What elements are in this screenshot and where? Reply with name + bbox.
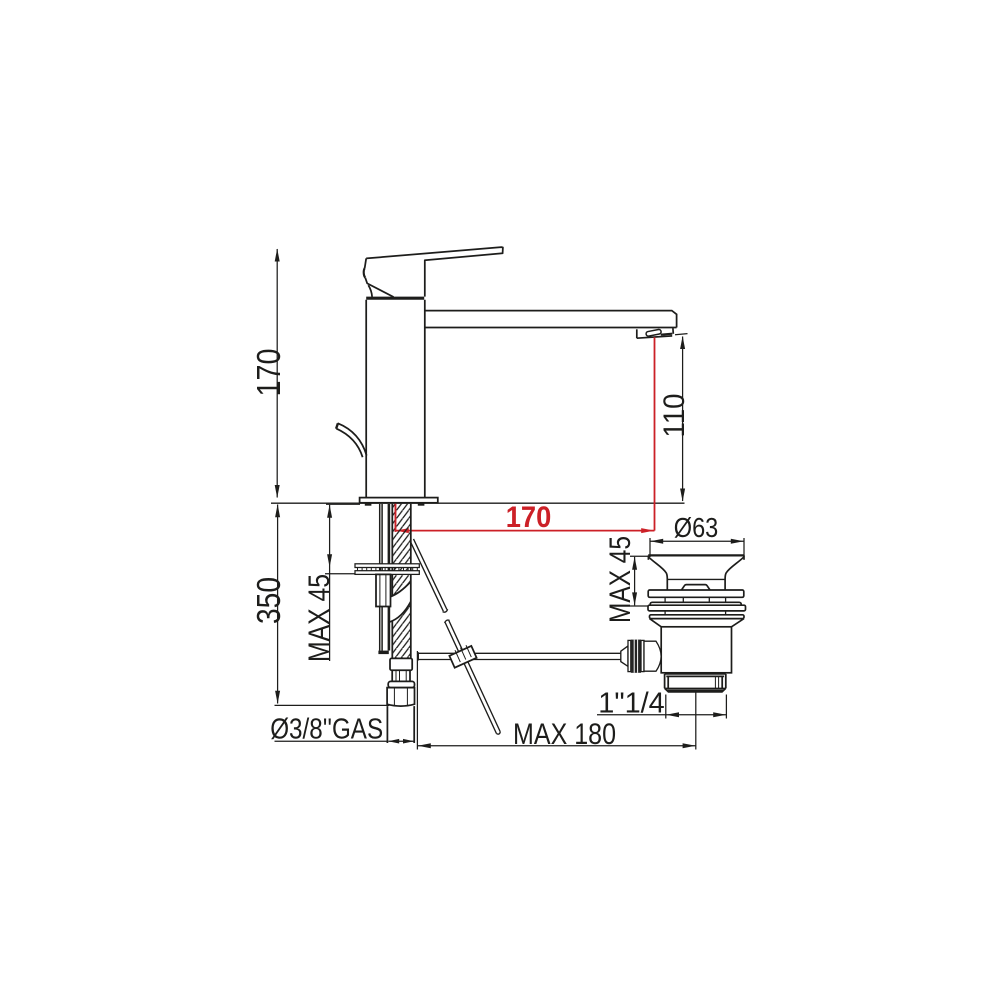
svg-text:1"1/4: 1"1/4 bbox=[598, 688, 664, 720]
svg-text:MAX 180: MAX 180 bbox=[513, 717, 616, 751]
svg-text:110: 110 bbox=[658, 394, 691, 438]
svg-text:MAX 45: MAX 45 bbox=[302, 574, 336, 662]
svg-text:Ø63: Ø63 bbox=[674, 513, 718, 543]
svg-text:170: 170 bbox=[250, 348, 287, 396]
svg-text:170: 170 bbox=[506, 501, 551, 534]
svg-text:350: 350 bbox=[250, 577, 288, 624]
svg-text:MAX 45: MAX 45 bbox=[602, 536, 636, 623]
svg-text:Ø3/8''GAS: Ø3/8''GAS bbox=[270, 713, 383, 745]
